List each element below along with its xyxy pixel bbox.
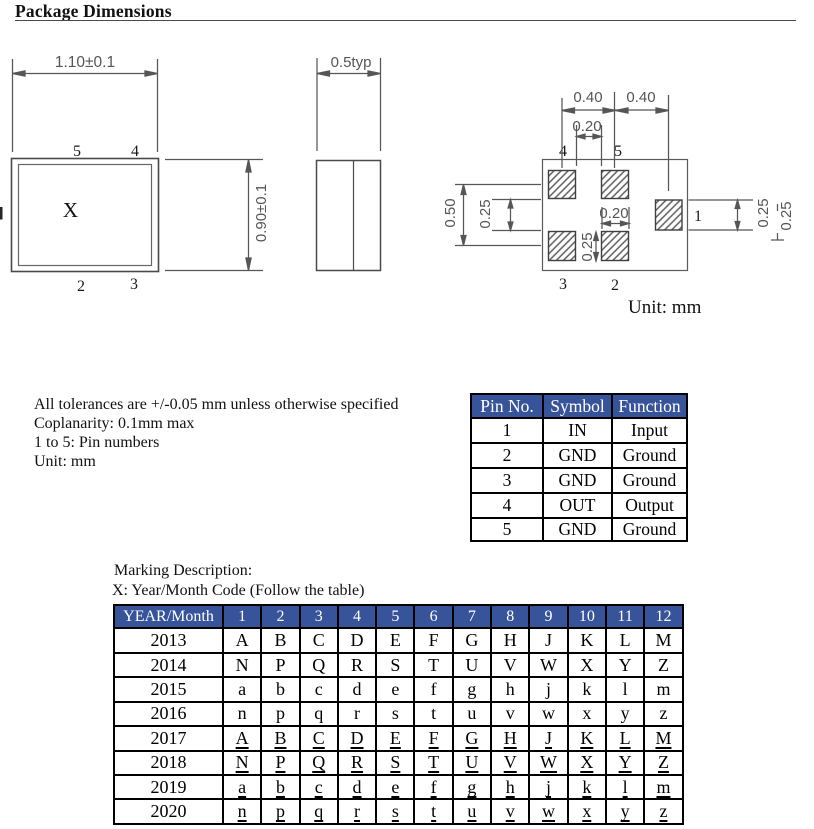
svg-text:2: 2: [77, 278, 85, 295]
svg-text:0.25: 0.25: [778, 201, 795, 230]
svg-text:0.25: 0.25: [755, 198, 772, 227]
svg-text:0.90±0.1: 0.90±0.1: [253, 184, 270, 242]
svg-text:3: 3: [559, 276, 567, 293]
svg-text:3: 3: [130, 276, 138, 293]
svg-text:0.25: 0.25: [579, 232, 596, 261]
svg-text:1.10±0.1: 1.10±0.1: [55, 54, 115, 71]
svg-text:4: 4: [131, 143, 139, 160]
svg-text:2: 2: [611, 277, 619, 294]
svg-text:Unit: mm: Unit: mm: [628, 297, 702, 318]
svg-text:5: 5: [73, 143, 81, 160]
svg-text:5: 5: [614, 143, 622, 160]
svg-text:X: X: [63, 198, 78, 222]
svg-text:1: 1: [694, 208, 702, 225]
svg-text:4: 4: [559, 143, 567, 160]
svg-text:0.50: 0.50: [442, 198, 459, 227]
svg-text:0.40: 0.40: [626, 89, 655, 106]
svg-text:0.40: 0.40: [573, 89, 602, 106]
svg-text:0.20: 0.20: [599, 205, 628, 222]
svg-text:0.5typ: 0.5typ: [331, 54, 372, 71]
svg-text:0.25: 0.25: [477, 199, 494, 228]
svg-text:0.20: 0.20: [572, 118, 601, 135]
